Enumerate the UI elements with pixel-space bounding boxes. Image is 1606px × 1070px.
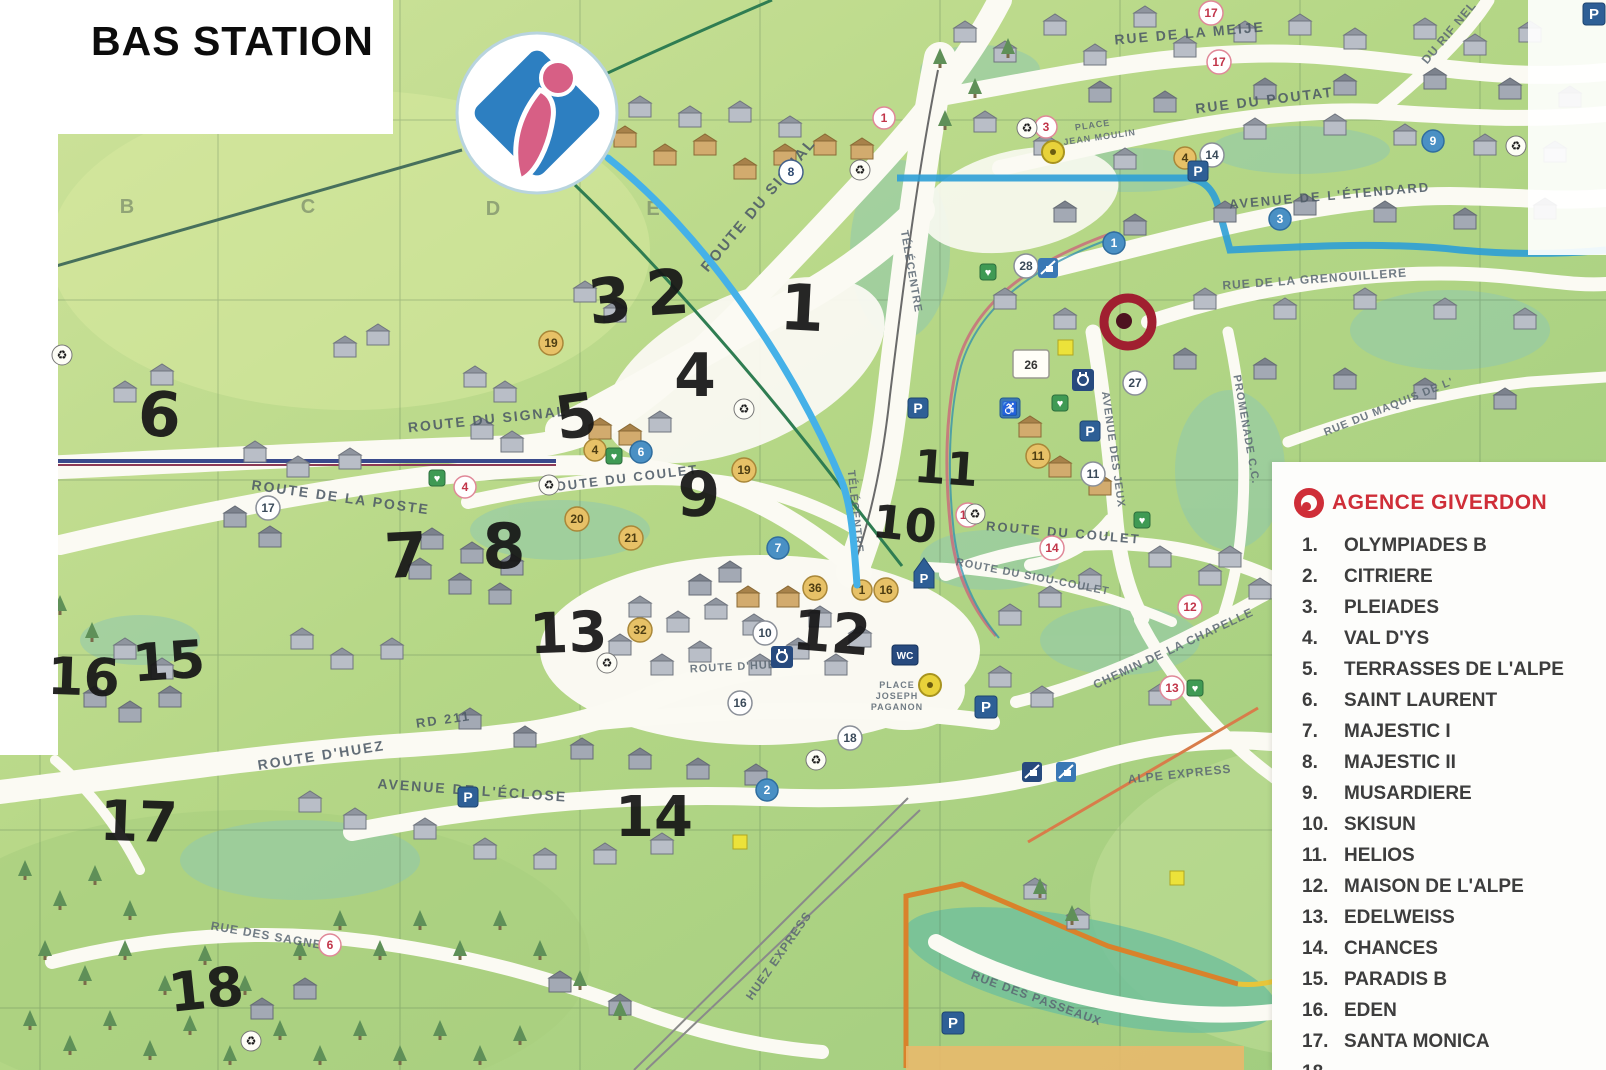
svg-text:18: 18 (165, 954, 246, 1025)
svg-text:B: B (120, 196, 134, 218)
svg-text:3: 3 (584, 262, 635, 339)
svg-text:20: 20 (570, 512, 584, 526)
legend-item: 11.HELIOS (1272, 840, 1606, 871)
legend-item: 9.MUSARDIERE (1272, 778, 1606, 809)
svg-text:3: 3 (1277, 212, 1284, 226)
svg-text:14: 14 (615, 785, 693, 850)
svg-text:♻: ♻ (1511, 139, 1522, 153)
recycle-icon: ♻ (734, 399, 754, 419)
recycle-icon: ♻ (1017, 118, 1037, 138)
recycle-icon: ♻ (965, 504, 985, 524)
gondola-icon (1022, 762, 1042, 782)
svg-text:P: P (981, 699, 991, 716)
info-icon (919, 674, 941, 696)
svg-text:12: 12 (1183, 600, 1197, 614)
parking-icon: P (458, 787, 478, 807)
legend-item: 10.SKISUN (1272, 809, 1606, 840)
svg-text:1: 1 (1111, 236, 1118, 250)
svg-text:WC: WC (897, 651, 914, 662)
legend-item: 7.MAJESTIC I (1272, 716, 1606, 747)
svg-text:10: 10 (870, 494, 939, 554)
svg-text:1: 1 (881, 111, 888, 125)
svg-text:P: P (1085, 423, 1094, 439)
svg-text:P: P (948, 1015, 958, 1032)
svg-text:♥: ♥ (611, 451, 618, 463)
svg-text:6: 6 (327, 938, 334, 952)
svg-text:6: 6 (135, 377, 183, 453)
svg-text:21: 21 (624, 531, 638, 545)
svg-text:19: 19 (737, 463, 751, 477)
svg-text:8: 8 (482, 510, 525, 583)
svg-text:32: 32 (633, 623, 647, 637)
svg-text:JOSEPH: JOSEPH (876, 691, 919, 701)
marker-square-icon (733, 835, 747, 849)
legend-item: 8.MAJESTIC II (1272, 747, 1606, 778)
svg-text:♥: ♥ (1057, 398, 1064, 410)
recycle-icon: ♻ (241, 1031, 261, 1051)
svg-text:9: 9 (676, 457, 722, 531)
recycle-icon: ♻ (52, 345, 72, 365)
charging-icon (1072, 369, 1094, 391)
svg-text:13: 13 (1165, 681, 1179, 695)
svg-text:1: 1 (778, 271, 826, 347)
svg-text:♥: ♥ (434, 473, 441, 485)
svg-text:P: P (1589, 6, 1599, 23)
svg-text:13: 13 (528, 600, 608, 668)
resort-map: B C D E ROUTE DU SIGNAL ROUTE DU SIGNAL … (0, 0, 1606, 1070)
parking-icon: P (942, 1012, 964, 1034)
svg-text:12: 12 (790, 598, 873, 670)
legend-title: AGENCE GIVERDON (1332, 491, 1547, 515)
resort-logo-icon (452, 28, 622, 198)
legend-item-cutoff: 18. (1272, 1057, 1606, 1070)
svg-text:17: 17 (99, 789, 179, 857)
recycle-icon: ♻ (806, 750, 826, 770)
svg-text:28: 28 (1019, 259, 1033, 273)
svg-text:14: 14 (1045, 541, 1059, 555)
svg-text:7: 7 (382, 518, 429, 593)
svg-text:6: 6 (638, 445, 645, 459)
legend-item: 3.PLEIADES (1272, 592, 1606, 623)
svg-text:17: 17 (1212, 55, 1226, 69)
page-title-box: BAS STATION (57, 0, 393, 134)
svg-text:D: D (486, 198, 500, 220)
svg-text:16: 16 (879, 583, 893, 597)
agency-logo-icon (1294, 488, 1324, 518)
svg-text:18: 18 (843, 731, 857, 745)
svg-text:P: P (913, 400, 922, 416)
svg-text:♥: ♥ (1139, 515, 1146, 527)
svg-text:P: P (920, 571, 929, 586)
svg-text:17: 17 (261, 501, 275, 515)
legend-item: 2.CITRIERE (1272, 561, 1606, 592)
svg-text:2: 2 (764, 783, 771, 797)
heart-icon: ♥ (1052, 395, 1068, 411)
svg-text:♻: ♻ (544, 478, 555, 492)
svg-text:♥: ♥ (1192, 683, 1199, 695)
legend-item: 13.EDELWEISS (1272, 902, 1606, 933)
gondola-icon (1038, 258, 1058, 278)
heart-icon: ♥ (606, 448, 622, 464)
recycle-icon: ♻ (539, 475, 559, 495)
heart-icon: ♥ (980, 264, 996, 280)
svg-text:10: 10 (758, 626, 772, 640)
svg-text:2: 2 (643, 255, 691, 331)
legend-item: 15.PARADIS B (1272, 964, 1606, 995)
wheelchair-icon: ♿ (1000, 398, 1020, 418)
svg-text:C: C (301, 196, 315, 218)
legend-item: 12.MAISON DE L'ALPE (1272, 871, 1606, 902)
heart-icon: ♥ (1187, 680, 1203, 696)
svg-text:♻: ♻ (1022, 121, 1033, 135)
heart-icon: ♥ (429, 470, 445, 486)
svg-text:11: 11 (1087, 467, 1100, 481)
svg-text:3: 3 (1043, 120, 1050, 134)
legend-item: 6.SAINT LAURENT (1272, 685, 1606, 716)
svg-text:♻: ♻ (970, 507, 981, 521)
svg-text:PLACE: PLACE (879, 680, 915, 690)
svg-text:7: 7 (775, 541, 782, 555)
svg-text:11: 11 (1032, 449, 1045, 463)
legend-header: AGENCE GIVERDON (1272, 462, 1606, 530)
svg-text:14: 14 (1205, 148, 1219, 162)
svg-text:19: 19 (544, 336, 558, 350)
recycle-icon: ♻ (850, 160, 870, 180)
parking-icon: P (1080, 421, 1100, 441)
svg-text:15: 15 (131, 630, 207, 695)
svg-text:♥: ♥ (985, 267, 992, 279)
svg-text:♻: ♻ (811, 753, 822, 767)
marker-square-icon (1170, 871, 1184, 885)
svg-text:9: 9 (1430, 134, 1437, 148)
svg-text:8: 8 (788, 165, 795, 179)
heart-icon: ♥ (1134, 512, 1150, 528)
marker-square-icon (1058, 340, 1073, 355)
legend-item: 17.SANTA MONICA (1272, 1026, 1606, 1057)
svg-text:4: 4 (674, 341, 716, 411)
legend-item: 16.EDEN (1272, 995, 1606, 1026)
wc-icon: WC (892, 645, 918, 665)
svg-text:27: 27 (1128, 376, 1142, 390)
svg-text:♻: ♻ (739, 402, 750, 416)
svg-text:♿: ♿ (1002, 401, 1018, 416)
legend-item: 4.VAL D'YS (1272, 623, 1606, 654)
svg-text:11: 11 (912, 439, 980, 497)
svg-text:16: 16 (733, 696, 747, 710)
svg-text:P: P (1193, 163, 1202, 179)
svg-text:4: 4 (462, 480, 469, 494)
svg-text:PAGANON: PAGANON (871, 702, 923, 712)
legend-item: 5.TERRASSES DE L'ALPE (1272, 654, 1606, 685)
svg-text:♻: ♻ (246, 1034, 257, 1048)
resort-logo (452, 28, 622, 198)
legend-panel: AGENCE GIVERDON 1.OLYMPIADES B 2.CITRIER… (1272, 462, 1606, 1070)
parking-icon: P (975, 696, 997, 718)
gondola-icon (1056, 762, 1076, 782)
svg-text:26: 26 (1024, 358, 1038, 372)
cutoff-label-bar (906, 1046, 1244, 1070)
svg-text:♻: ♻ (57, 348, 68, 362)
recycle-icon: ♻ (1506, 136, 1526, 156)
parking-icon: P (908, 398, 928, 418)
legend-item: 1.OLYMPIADES B (1272, 530, 1606, 561)
parking-icon: P (1188, 161, 1208, 181)
page-title: BAS STATION (57, 0, 393, 65)
svg-text:♻: ♻ (855, 163, 866, 177)
page-margin-left (0, 0, 58, 755)
svg-text:P: P (463, 789, 472, 805)
legend-item: 14.CHANCES (1272, 933, 1606, 964)
svg-text:17: 17 (1204, 6, 1218, 20)
svg-text:36: 36 (808, 581, 822, 595)
svg-text:16: 16 (46, 647, 120, 709)
page-margin-right (1528, 0, 1606, 255)
info-icon (1042, 141, 1064, 163)
parking-icon: P (1583, 3, 1605, 25)
